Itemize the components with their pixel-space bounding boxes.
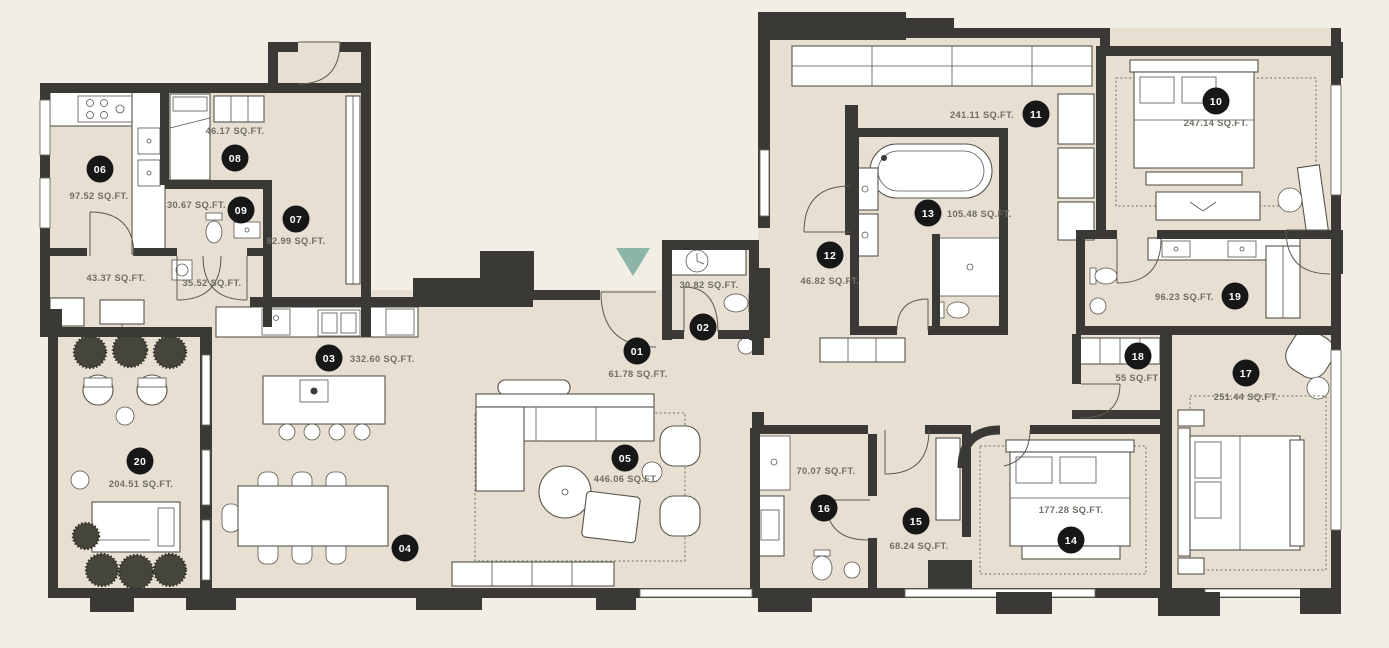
vanity-icon	[234, 222, 260, 238]
nightstand-icon	[1178, 410, 1204, 426]
chair-icon	[1278, 188, 1302, 212]
room-08-marker[interactable]: 08	[222, 145, 249, 172]
room-01-area-label: 61.78 SQ.FT.	[609, 369, 668, 379]
pendant-icon	[738, 338, 754, 354]
tree-icon	[154, 554, 186, 586]
sink-icon	[1090, 298, 1106, 314]
stool-icon	[329, 424, 345, 440]
room-19-marker-number: 19	[1229, 291, 1241, 303]
window-icon	[40, 100, 50, 155]
tree-icon	[113, 333, 147, 367]
room-14-marker-number: 14	[1065, 535, 1077, 547]
headboard-icon	[1006, 440, 1134, 452]
room-04-marker[interactable]: 04	[392, 535, 419, 562]
room-10-marker-number: 10	[1210, 96, 1222, 108]
console-icon	[100, 300, 144, 324]
pillow-icon	[1060, 457, 1096, 483]
window-icon	[640, 589, 752, 597]
wardrobe-icon	[1058, 148, 1094, 198]
room-20-marker-number: 20	[134, 456, 146, 468]
sliding-door-icon	[202, 450, 210, 505]
pillow-icon	[1195, 482, 1221, 518]
tree-icon	[119, 555, 153, 589]
chaise-icon	[476, 407, 524, 491]
room-13-marker[interactable]: 13	[915, 200, 942, 227]
pillow-icon	[1140, 77, 1174, 103]
floor-plan-canvas: 43.37 SQ.FT. 35.52 SQ.FT. 0161.78 SQ.FT.…	[0, 0, 1389, 648]
room-14-area-label: 177.28 SQ.FT.	[1039, 505, 1104, 515]
room-19-marker[interactable]: 19	[1222, 283, 1249, 310]
nightstand-icon	[1178, 558, 1204, 574]
room-06-marker-number: 06	[94, 164, 106, 176]
room-11-marker-number: 11	[1030, 109, 1042, 121]
closet-icon	[214, 96, 264, 122]
room-02-area-label: 30.82 SQ.FT.	[680, 280, 739, 290]
room-04-marker-number: 04	[399, 543, 411, 555]
corridor-07-panel	[346, 96, 360, 284]
room-12-area-label: 46.82 SQ.FT.	[801, 276, 860, 286]
sink-icon	[138, 160, 160, 186]
room-15-area-label: 68.24 SQ.FT.	[890, 541, 949, 551]
sink-icon	[138, 128, 160, 154]
room-06-area-label: 97.52 SQ.FT.	[70, 191, 129, 201]
stool-icon	[279, 424, 295, 440]
stool-icon	[354, 424, 370, 440]
room-08-area-label: 46.17 SQ.FT.	[206, 126, 265, 136]
room-17-marker[interactable]: 17	[1233, 360, 1260, 387]
room-20-area-label: 204.51 SQ.FT.	[109, 479, 174, 489]
room-08-marker-number: 08	[229, 153, 241, 165]
stool-icon	[304, 424, 320, 440]
pouf-icon	[581, 491, 640, 543]
room-02-marker-number: 02	[697, 322, 709, 334]
room-12-marker-number: 12	[824, 250, 836, 262]
room-03-marker-number: 03	[323, 353, 335, 365]
armchair-icon	[660, 426, 700, 466]
room-07-area-label: 82.99 SQ.FT.	[267, 236, 326, 246]
room-10-marker[interactable]: 10	[1203, 88, 1230, 115]
room-02-marker[interactable]: 02	[690, 314, 717, 341]
window-icon	[1331, 85, 1341, 195]
room-11-area-label: 241.11 SQ.FT.	[950, 110, 1014, 120]
tree-icon	[86, 554, 118, 586]
room-10-area-label: 247.14 SQ.FT.	[1184, 118, 1249, 128]
room-03-marker[interactable]: 03	[316, 345, 343, 372]
room-19-area-label: 96.23 SQ.FT.	[1155, 292, 1214, 302]
floor-plan-svg: 43.37 SQ.FT. 35.52 SQ.FT. 0161.78 SQ.FT.…	[0, 0, 1389, 648]
shower-icon	[938, 238, 1002, 296]
armchair-icon	[660, 496, 700, 536]
room-01-marker[interactable]: 01	[624, 338, 651, 365]
room-16-marker-number: 16	[818, 503, 830, 515]
appliance-icon	[386, 309, 414, 335]
headboard-icon	[1178, 428, 1190, 556]
room-16-marker[interactable]: 16	[811, 495, 838, 522]
coffee-table-icon	[539, 466, 591, 518]
room-12-marker[interactable]: 12	[817, 242, 844, 269]
tree-icon	[74, 336, 106, 368]
closet-icon	[820, 338, 905, 362]
tree-icon	[73, 523, 99, 549]
pillow-icon	[1195, 442, 1221, 478]
room-09-marker-number: 09	[235, 205, 247, 217]
room-17-marker-number: 17	[1240, 368, 1252, 380]
sliding-door-icon	[202, 520, 210, 580]
room-18-marker[interactable]: 18	[1125, 343, 1152, 370]
room-13-area-label: 105.48 SQ.FT.	[947, 209, 1012, 219]
closet-icon	[936, 438, 960, 520]
room-03-area-label: 332.60 SQ.FT.	[350, 354, 415, 364]
room-09-area-label: 30.67 SQ.FT.	[167, 200, 226, 210]
room-15-marker[interactable]: 15	[903, 508, 930, 535]
bench-icon	[1146, 172, 1242, 185]
room-01-marker-number: 01	[631, 346, 643, 358]
room-14-marker[interactable]: 14	[1058, 527, 1085, 554]
hall-area-label: 35.52 SQ.FT.	[183, 278, 242, 288]
wardrobe-icon	[1058, 94, 1094, 144]
toilet-icon	[206, 221, 222, 243]
room-18-area-label: 55 SQ.FT	[1115, 373, 1158, 383]
window-icon	[1205, 589, 1315, 597]
shower-icon	[758, 436, 790, 490]
sofa-cushion-icon	[498, 380, 570, 395]
hall-closet	[820, 338, 905, 362]
window-icon	[760, 150, 769, 216]
toilet-icon	[724, 294, 748, 312]
dresser-icon	[1156, 192, 1260, 220]
dining-table-icon	[238, 486, 388, 546]
pillow-icon	[1016, 457, 1052, 483]
toilet-icon	[1095, 268, 1117, 284]
room-20-marker[interactable]: 20	[127, 448, 154, 475]
room-05-marker[interactable]: 05	[612, 445, 639, 472]
room-09-marker[interactable]: 09	[228, 197, 255, 224]
room-05-area-label: 446.06 SQ.FT.	[594, 474, 659, 484]
sliding-door-icon	[202, 355, 210, 425]
sink-icon	[844, 562, 860, 578]
room-11-marker[interactable]: 11	[1023, 101, 1050, 128]
sink-icon	[1228, 241, 1256, 257]
room-17-area-label: 251.44 SQ.FT.	[1214, 392, 1279, 402]
tree-icon	[154, 336, 186, 368]
bench-icon	[1290, 440, 1304, 546]
sink-icon	[1162, 241, 1190, 257]
side-table-icon	[116, 407, 134, 425]
toilet-icon	[812, 556, 832, 580]
sofa-icon	[476, 394, 654, 407]
room-05-marker-number: 05	[619, 453, 631, 465]
hall-area-label: 43.37 SQ.FT.	[87, 273, 146, 283]
chair-icon	[222, 504, 240, 532]
room-07-marker-number: 07	[290, 214, 302, 226]
room-18-marker-number: 18	[1132, 351, 1144, 363]
room-13-marker-number: 13	[922, 208, 934, 220]
window-icon	[40, 178, 50, 228]
headboard-icon	[1130, 60, 1258, 72]
room-15-marker-number: 15	[910, 516, 922, 528]
window-icon	[1331, 350, 1341, 530]
room-06-marker[interactable]: 06	[87, 156, 114, 183]
toilet-icon	[947, 302, 969, 318]
room-07-marker[interactable]: 07	[283, 206, 310, 233]
room-16-area-label: 70.07 SQ.FT.	[797, 466, 856, 476]
tv-console-icon	[452, 562, 614, 586]
entry-arrow-icon	[616, 248, 650, 276]
